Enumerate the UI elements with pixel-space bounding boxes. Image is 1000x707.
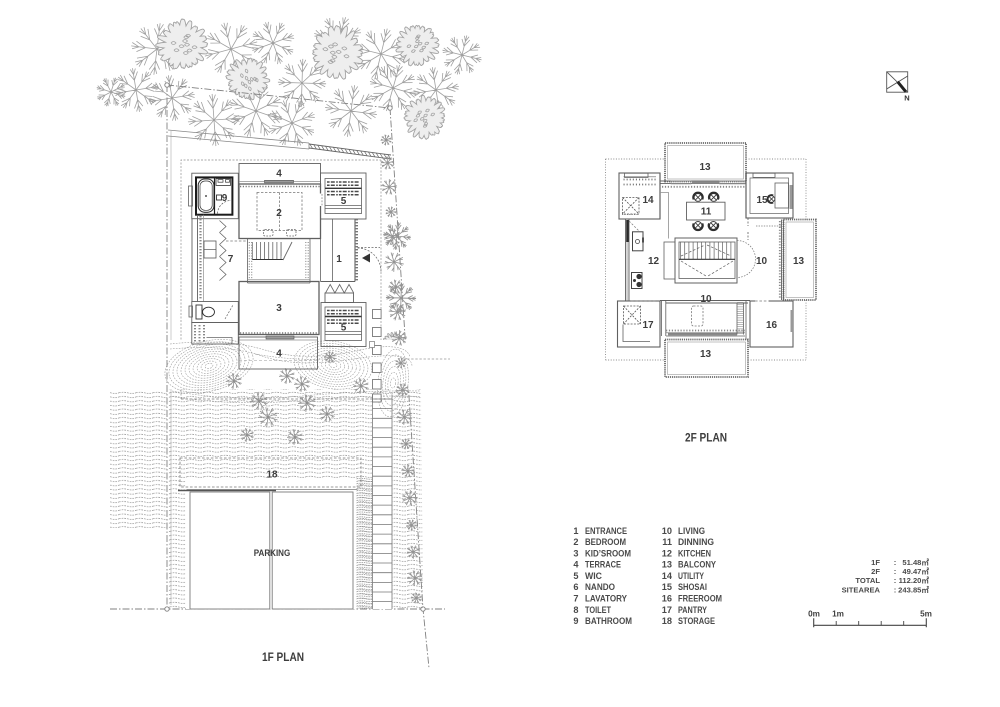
svg-text:FREEROOM: FREEROOM bbox=[678, 594, 722, 604]
svg-text:TOILET: TOILET bbox=[585, 605, 611, 615]
svg-text:8: 8 bbox=[573, 605, 578, 615]
svg-text:18: 18 bbox=[662, 616, 672, 626]
svg-text:3: 3 bbox=[276, 303, 282, 314]
svg-text:SHOSAI: SHOSAI bbox=[678, 582, 707, 592]
svg-text:6: 6 bbox=[573, 582, 578, 592]
svg-text:17: 17 bbox=[662, 605, 672, 615]
svg-text:DINNING: DINNING bbox=[678, 537, 714, 547]
svg-text:KID’SROOM: KID’SROOM bbox=[585, 548, 631, 558]
svg-text:18: 18 bbox=[266, 470, 278, 481]
svg-text:2F PLAN: 2F PLAN bbox=[685, 433, 727, 445]
svg-text:WIC: WIC bbox=[585, 571, 602, 581]
svg-text:15: 15 bbox=[662, 582, 672, 592]
svg-text:13: 13 bbox=[793, 256, 805, 267]
svg-text:UTILITY: UTILITY bbox=[678, 571, 704, 581]
svg-text:TERRACE: TERRACE bbox=[585, 560, 621, 570]
svg-text:4: 4 bbox=[276, 349, 282, 360]
svg-text:12: 12 bbox=[648, 256, 660, 267]
svg-text:13: 13 bbox=[699, 162, 711, 173]
svg-text:14: 14 bbox=[662, 571, 673, 581]
svg-text:KITCHEN: KITCHEN bbox=[678, 548, 711, 558]
svg-text:STORAGE: STORAGE bbox=[678, 616, 715, 626]
svg-text:11: 11 bbox=[701, 207, 712, 218]
svg-text:BALCONY: BALCONY bbox=[678, 560, 716, 570]
svg-text:12: 12 bbox=[662, 548, 672, 558]
svg-text:10: 10 bbox=[756, 256, 768, 267]
svg-text:5: 5 bbox=[341, 323, 347, 334]
svg-text:10: 10 bbox=[662, 526, 672, 536]
svg-text:10: 10 bbox=[700, 294, 712, 305]
svg-text:0m: 0m bbox=[808, 610, 820, 619]
svg-text:2: 2 bbox=[573, 537, 578, 547]
svg-text:2: 2 bbox=[276, 208, 282, 219]
svg-text:LAVATORY: LAVATORY bbox=[585, 594, 627, 604]
svg-text:N: N bbox=[904, 94, 909, 103]
svg-text:TOTAL: TOTAL bbox=[855, 576, 880, 585]
svg-text:1F PLAN: 1F PLAN bbox=[262, 652, 304, 664]
svg-text:49.47㎡: 49.47㎡ bbox=[902, 566, 929, 576]
svg-text:14: 14 bbox=[642, 195, 654, 206]
svg-text:1F: 1F bbox=[871, 558, 880, 567]
svg-text::: : bbox=[894, 558, 897, 567]
svg-text:7: 7 bbox=[573, 594, 578, 604]
svg-text:16: 16 bbox=[662, 594, 672, 604]
svg-text:5: 5 bbox=[341, 196, 347, 207]
svg-text:7: 7 bbox=[228, 254, 234, 265]
svg-text:PANTRY: PANTRY bbox=[678, 605, 707, 615]
svg-text:BEDROOM: BEDROOM bbox=[585, 537, 626, 547]
svg-text:1: 1 bbox=[573, 526, 578, 536]
svg-text:5: 5 bbox=[573, 571, 578, 581]
svg-text:13: 13 bbox=[662, 560, 672, 570]
svg-text:243.85㎡: 243.85㎡ bbox=[898, 584, 929, 594]
svg-text:9: 9 bbox=[573, 616, 578, 626]
svg-text:PARKING: PARKING bbox=[254, 548, 291, 558]
svg-text:1: 1 bbox=[336, 254, 342, 265]
svg-text:2F: 2F bbox=[871, 567, 880, 576]
svg-text:1m: 1m bbox=[832, 610, 844, 619]
svg-text:SITEAREA: SITEAREA bbox=[842, 585, 881, 594]
svg-text:3: 3 bbox=[573, 548, 578, 558]
svg-text:9: 9 bbox=[222, 193, 228, 204]
svg-text::: : bbox=[894, 576, 897, 585]
svg-text::: : bbox=[894, 567, 897, 576]
svg-text:BATHROOM: BATHROOM bbox=[585, 616, 632, 626]
svg-text:ENTRANCE: ENTRANCE bbox=[585, 526, 627, 536]
svg-text:4: 4 bbox=[276, 169, 282, 180]
svg-text:15: 15 bbox=[756, 195, 768, 206]
svg-text:NANDO: NANDO bbox=[585, 582, 615, 592]
svg-text:17: 17 bbox=[642, 320, 654, 331]
svg-text:16: 16 bbox=[766, 320, 778, 331]
svg-text:4: 4 bbox=[573, 560, 579, 570]
svg-text:13: 13 bbox=[700, 349, 712, 360]
svg-text:11: 11 bbox=[662, 537, 672, 547]
svg-text:5m: 5m bbox=[920, 610, 932, 619]
svg-text::: : bbox=[894, 585, 897, 594]
svg-text:112.20㎡: 112.20㎡ bbox=[899, 575, 930, 585]
svg-text:LIVING: LIVING bbox=[678, 526, 705, 536]
svg-text:51.48㎡: 51.48㎡ bbox=[902, 557, 929, 567]
